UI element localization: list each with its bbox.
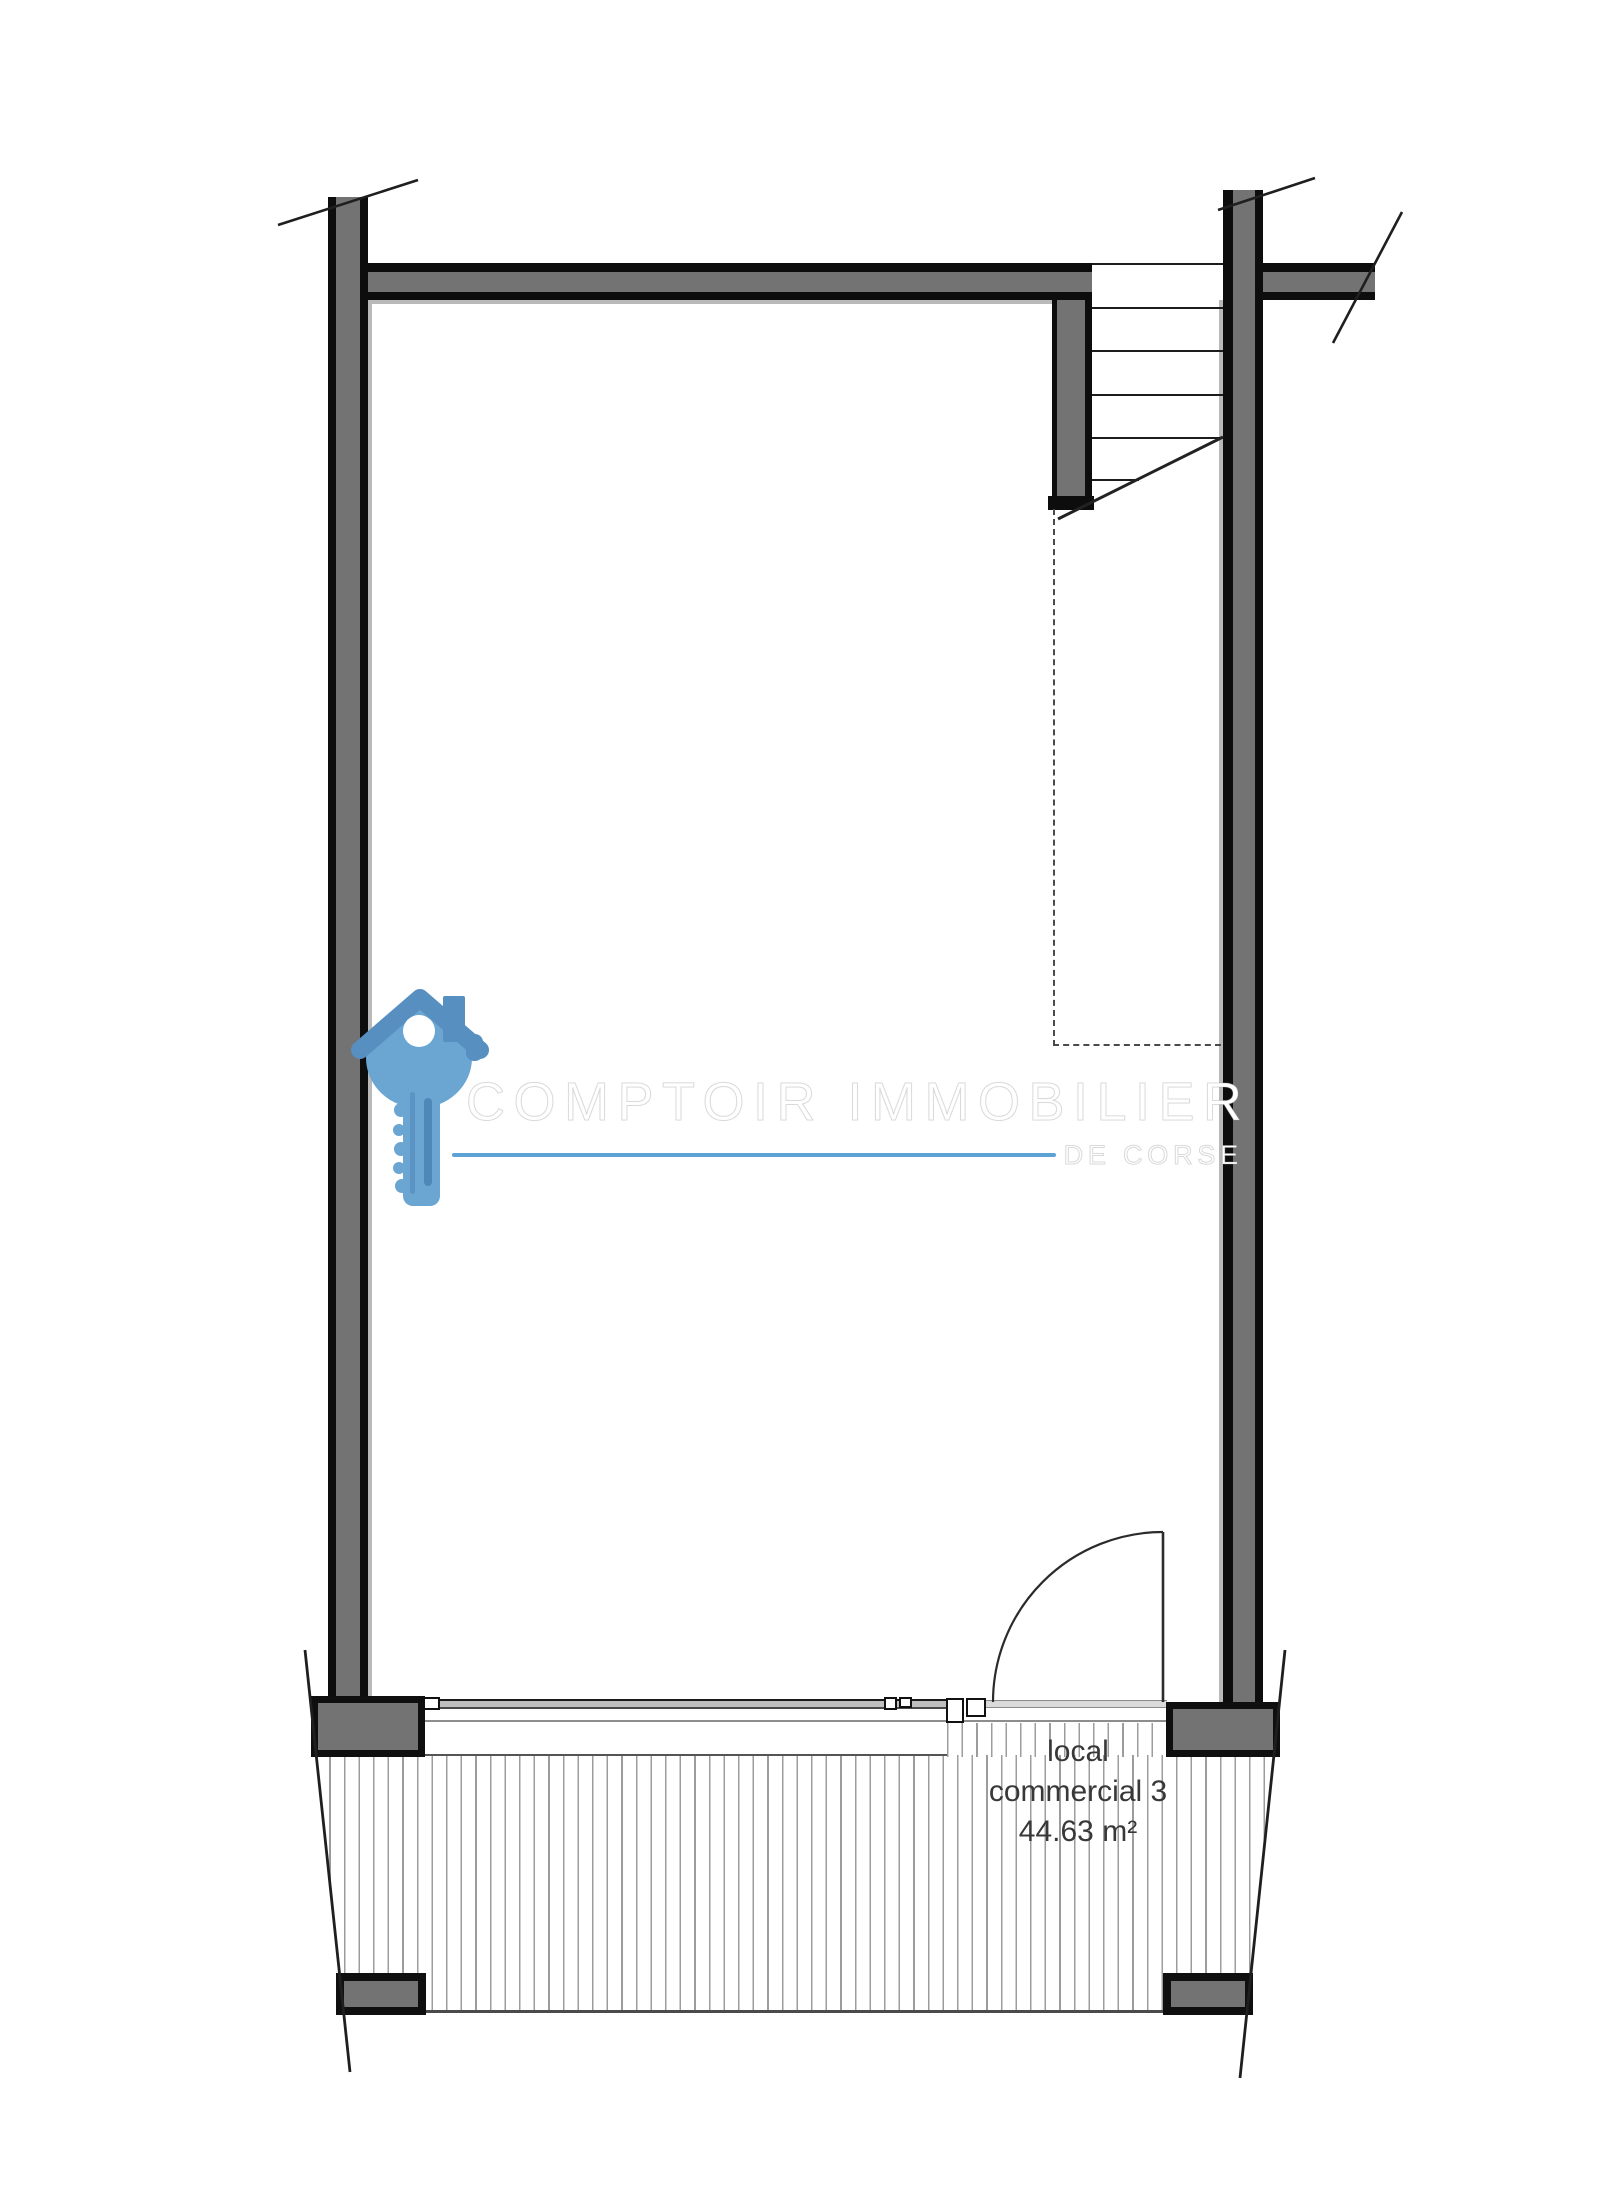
key-tooth <box>393 1124 405 1136</box>
key-tooth <box>394 1103 408 1117</box>
wall-break-line-bottom-right <box>1240 1650 1285 2078</box>
door-swing-arc <box>993 1532 1163 1702</box>
watermark-title: COMPTOIR IMMOBILIER <box>466 1075 1251 1129</box>
wall-break-line-top-right <box>1218 178 1315 210</box>
key-tooth <box>394 1142 408 1156</box>
key-tooth <box>393 1162 405 1174</box>
key-shaft-groove-dark <box>424 1098 432 1186</box>
floor-plan-canvas: local commercial 3 44.63 m² COMPTOIR IMM… <box>0 0 1600 2202</box>
wall-break-line-top-left <box>278 180 418 225</box>
key-hole <box>403 1015 435 1047</box>
stair-break-line <box>1058 437 1223 519</box>
wall-break-line-bottom-left <box>305 1650 350 2072</box>
watermark-rule <box>452 1153 1056 1157</box>
wall-break-line-stub-end <box>1333 212 1402 343</box>
key-roof-hook <box>466 1034 483 1061</box>
key-tooth <box>395 1179 409 1193</box>
house-key-icon <box>350 986 490 1218</box>
key-shaft-groove-light <box>410 1092 415 1194</box>
